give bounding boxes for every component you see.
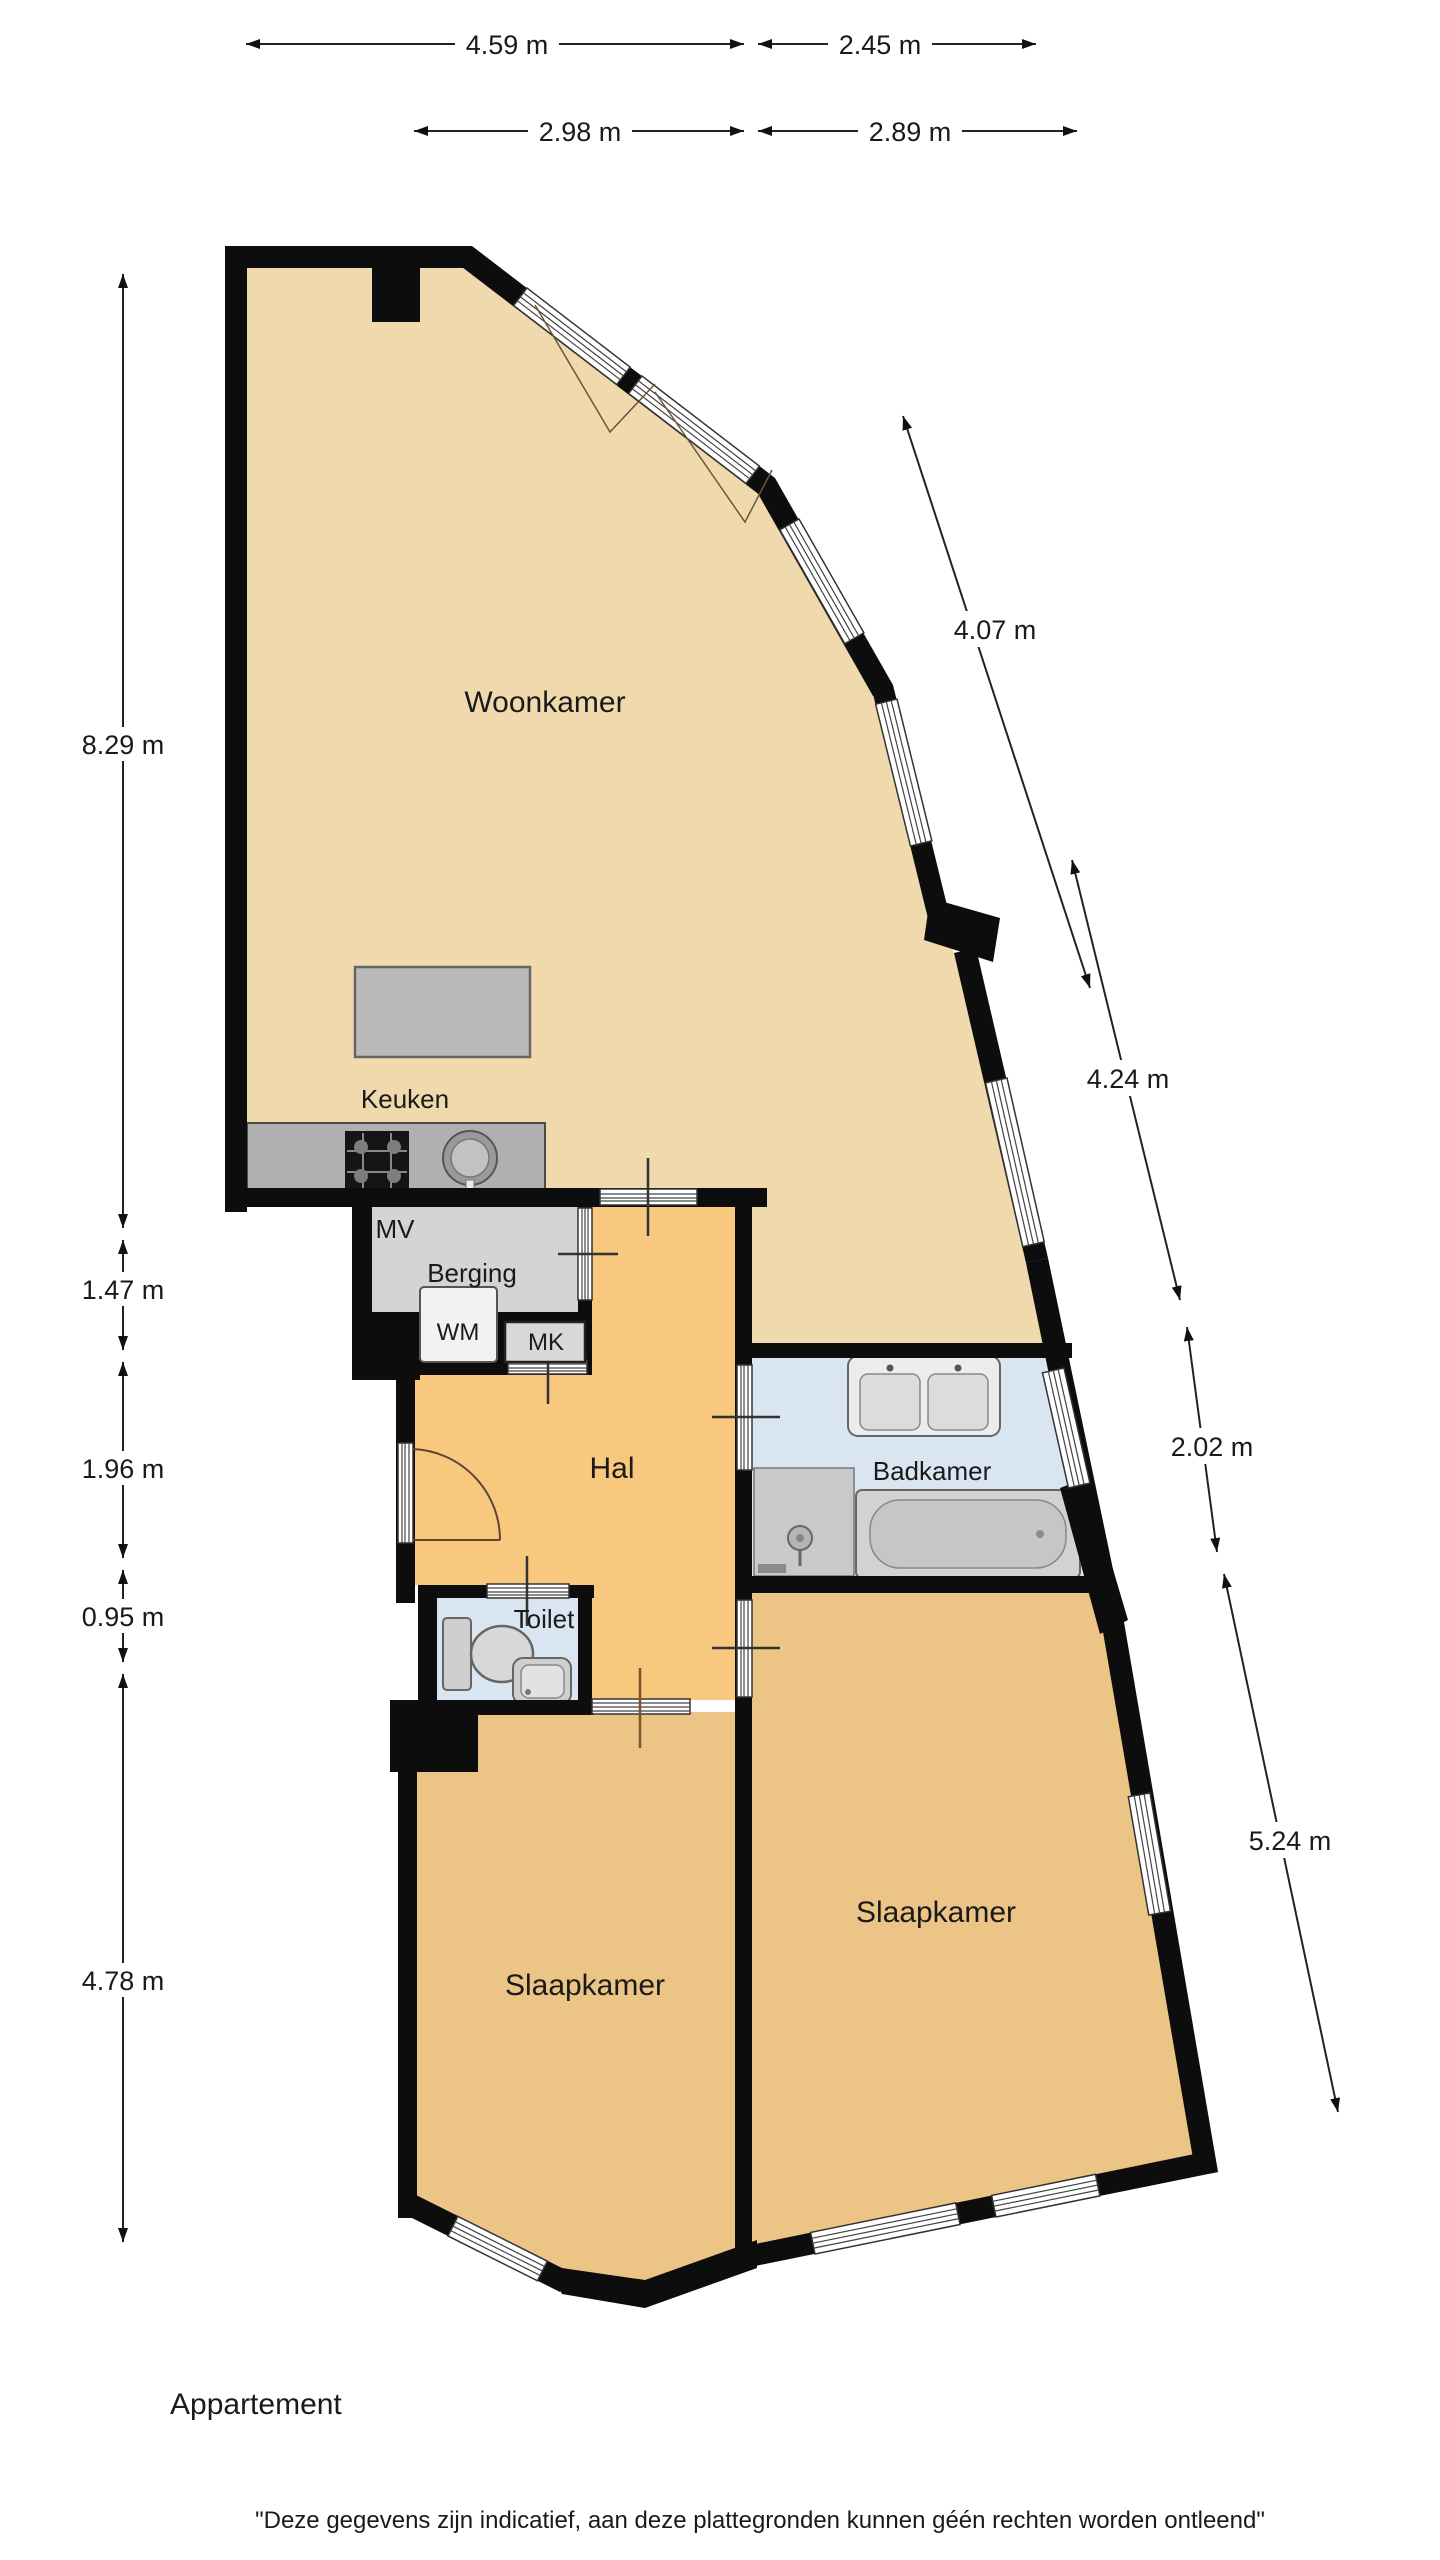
dim-left-1: 8.29 m <box>82 730 165 760</box>
dim-top2-1: 2.98 m <box>539 117 622 147</box>
dim-top-1: 4.59 m <box>466 30 549 60</box>
dim-left-4: 0.95 m <box>82 1602 165 1632</box>
label-mv: MV <box>376 1214 416 1244</box>
label-toilet: Toilet <box>514 1604 575 1634</box>
label-mk: MK <box>528 1329 564 1356</box>
kitchen-island <box>355 967 530 1057</box>
dim-left-5: 4.78 m <box>82 1966 165 1996</box>
label-keuken: Keuken <box>361 1084 449 1114</box>
dim-right-1: 4.07 m <box>954 615 1037 645</box>
dim-top2-2: 2.89 m <box>869 117 952 147</box>
label-wm: WM <box>437 1319 480 1346</box>
label-slaapkamer-right: Slaapkamer <box>856 1896 1016 1929</box>
label-hal: Hal <box>589 1452 634 1485</box>
floorplan-page: Woonkamer Keuken MV Berging WM MK Hal Ba… <box>0 0 1440 2560</box>
double-washbasin-icon <box>848 1356 1000 1436</box>
label-slaapkamer-left: Slaapkamer <box>505 1969 665 2002</box>
dim-right-4: 5.24 m <box>1249 1826 1332 1856</box>
dim-left-3: 1.96 m <box>82 1454 165 1484</box>
shower-icon <box>754 1468 854 1576</box>
floorplan-drawing: Woonkamer Keuken MV Berging WM MK Hal Ba… <box>0 0 1440 2560</box>
page-title: Appartement <box>170 2388 342 2421</box>
hand-basin-icon <box>513 1658 571 1704</box>
bathtub-icon <box>856 1490 1080 1578</box>
label-woonkamer: Woonkamer <box>464 686 625 719</box>
label-berging: Berging <box>427 1258 517 1288</box>
dim-right-2: 4.24 m <box>1087 1064 1170 1094</box>
dim-top-2: 2.45 m <box>839 30 922 60</box>
pillar <box>372 266 420 322</box>
stove-icon <box>345 1131 409 1191</box>
dim-right-3: 2.02 m <box>1171 1432 1254 1462</box>
room-slaapkamer-left <box>415 1712 740 2305</box>
disclaimer-text: "Deze gegevens zijn indicatief, aan deze… <box>255 2507 1265 2534</box>
label-badkamer: Badkamer <box>873 1456 992 1486</box>
dim-left-2: 1.47 m <box>82 1275 165 1305</box>
